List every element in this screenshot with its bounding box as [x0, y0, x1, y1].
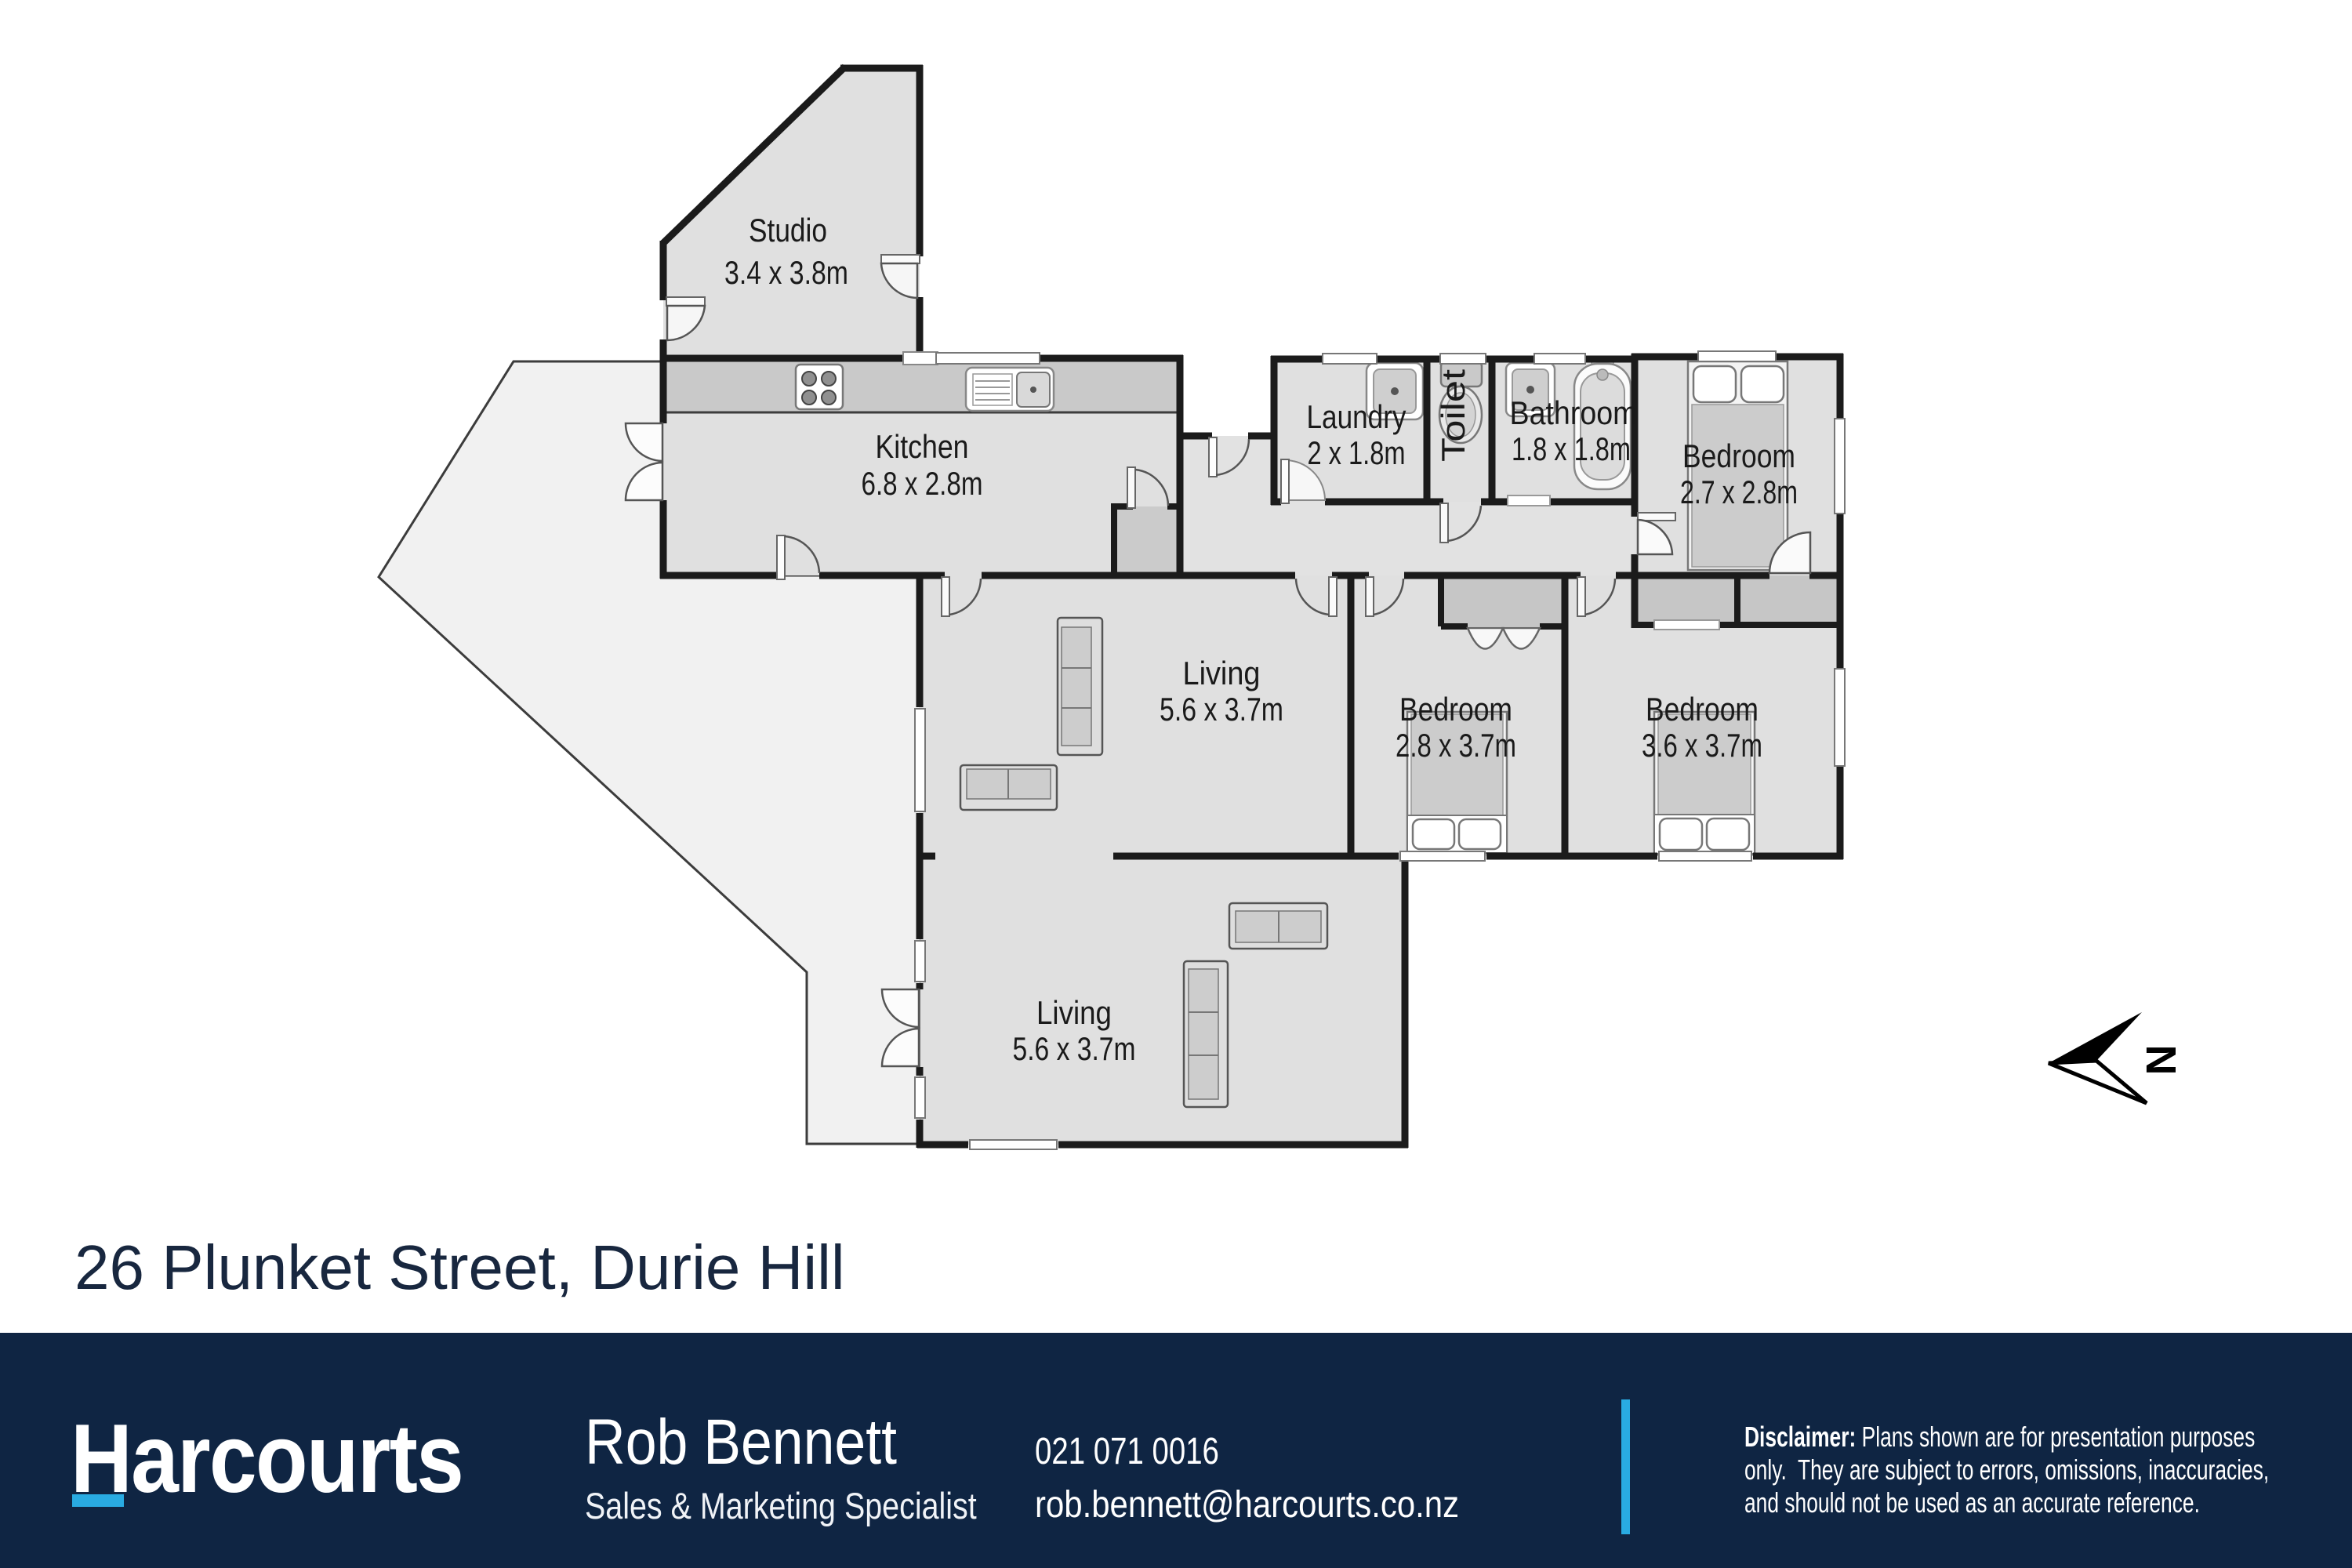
svg-text:Bedroom: Bedroom — [1399, 691, 1512, 728]
svg-text:Living: Living — [1036, 994, 1112, 1031]
svg-text:Living: Living — [1183, 655, 1261, 691]
svg-text:5.6 x 3.7m: 5.6 x 3.7m — [1013, 1030, 1136, 1067]
svg-text:5.6 x 3.7m: 5.6 x 3.7m — [1160, 691, 1283, 728]
svg-text:Laundry: Laundry — [1307, 398, 1406, 435]
svg-text:1.8 x 1.8m: 1.8 x 1.8m — [1512, 430, 1631, 467]
svg-text:2.8 x 3.7m: 2.8 x 3.7m — [1396, 727, 1516, 764]
svg-text:N: N — [2138, 1045, 2185, 1076]
svg-text:Bedroom: Bedroom — [1682, 437, 1795, 474]
svg-text:Bedroom: Bedroom — [1646, 691, 1759, 728]
svg-text:Toilet: Toilet — [1435, 369, 1472, 462]
svg-text:3.4 x 3.8m: 3.4 x 3.8m — [724, 254, 848, 291]
svg-text:3.6 x 3.7m: 3.6 x 3.7m — [1642, 727, 1762, 764]
svg-text:Kitchen: Kitchen — [876, 428, 969, 465]
svg-text:Studio: Studio — [749, 212, 827, 249]
svg-text:2.7 x 2.8m: 2.7 x 2.8m — [1680, 474, 1798, 510]
svg-text:6.8 x 2.8m: 6.8 x 2.8m — [862, 465, 983, 502]
svg-text:Bathroom: Bathroom — [1510, 394, 1638, 431]
svg-text:2 x 1.8m: 2 x 1.8m — [1308, 434, 1406, 471]
